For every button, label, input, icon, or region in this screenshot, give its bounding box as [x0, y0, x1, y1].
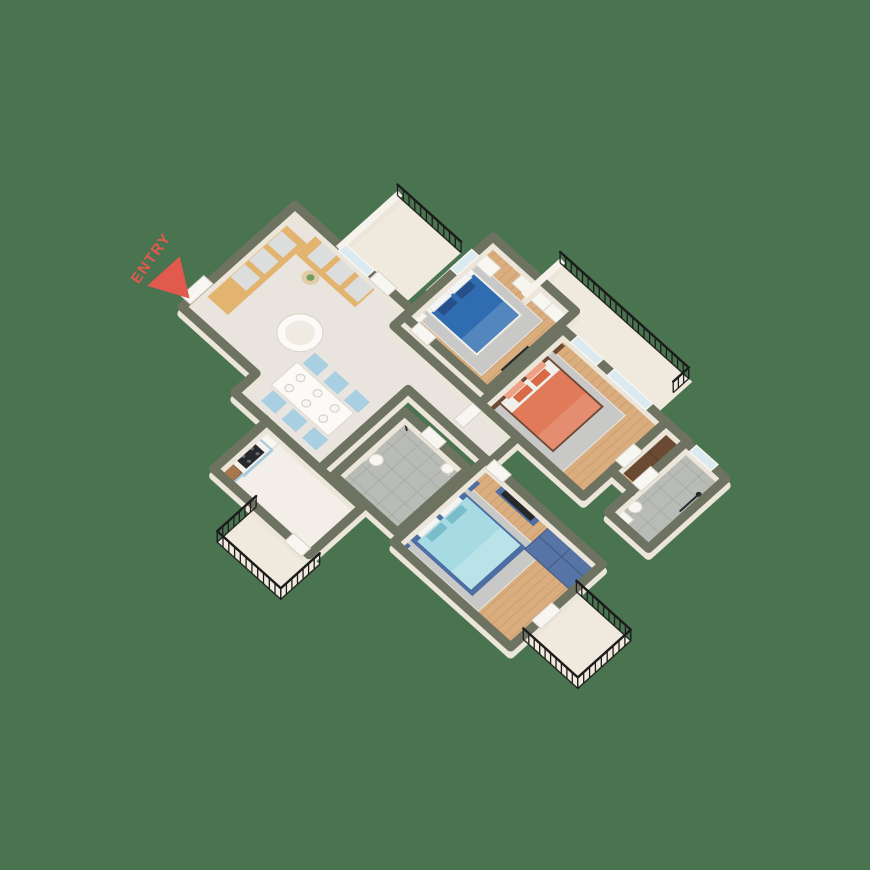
plate — [302, 400, 311, 407]
hob-burner — [247, 460, 251, 463]
toilet-bowl — [369, 454, 383, 465]
floorplan-canvas: ENTRY — [0, 0, 870, 870]
plate — [330, 405, 339, 412]
plate — [319, 415, 328, 422]
bed1-lamp — [414, 313, 420, 318]
plate — [296, 374, 305, 381]
plant — [307, 274, 315, 281]
toilet-bowl — [628, 501, 642, 512]
plate — [313, 390, 322, 397]
hob-burner — [250, 447, 254, 450]
washbasin — [441, 463, 454, 474]
plate — [285, 385, 294, 392]
coffee-table-top — [285, 321, 315, 346]
hob-burner — [241, 455, 245, 458]
hob-burner — [256, 452, 260, 455]
floorplan-stage: ENTRY — [0, 0, 870, 870]
